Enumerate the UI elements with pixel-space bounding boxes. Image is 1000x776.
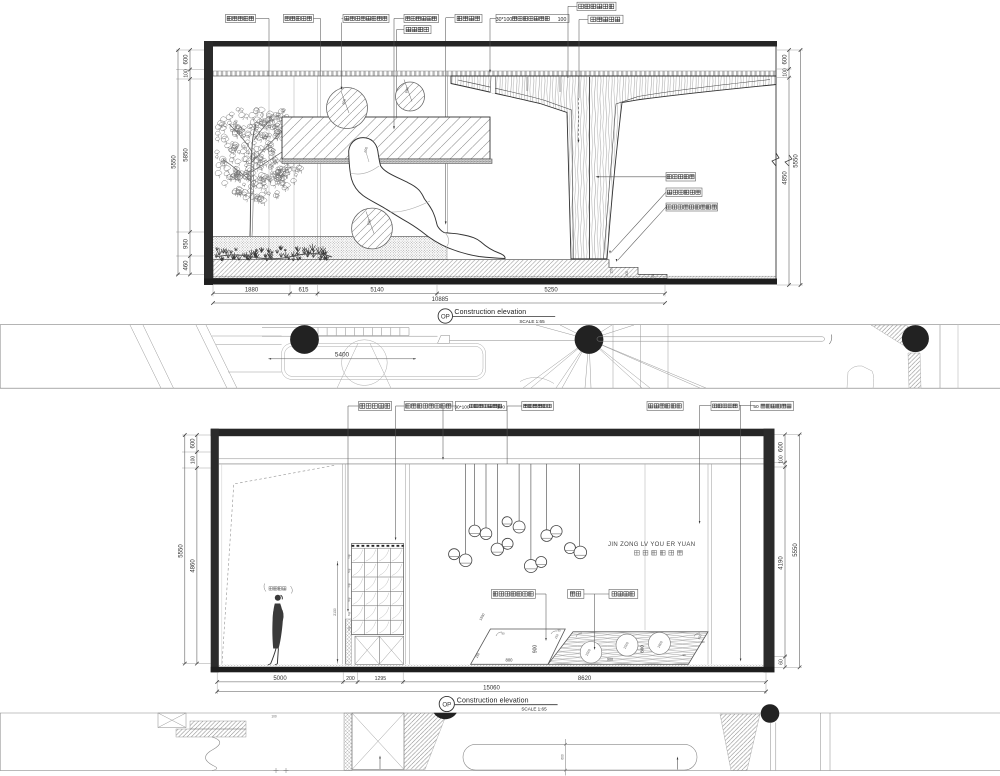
svg-text:60: 60 bbox=[779, 659, 785, 665]
svg-text:200: 200 bbox=[346, 676, 355, 682]
svg-text:SCALE 1:65: SCALE 1:65 bbox=[521, 707, 547, 712]
svg-text:100: 100 bbox=[184, 69, 190, 78]
svg-text:Construction elevation: Construction elevation bbox=[457, 698, 529, 705]
svg-text:500: 500 bbox=[347, 611, 351, 616]
svg-text:5000: 5000 bbox=[273, 676, 287, 682]
svg-text:2130: 2130 bbox=[333, 608, 337, 616]
svg-text:4860: 4860 bbox=[190, 559, 196, 573]
svg-text:OP: OP bbox=[441, 313, 450, 320]
svg-text:500: 500 bbox=[347, 554, 351, 559]
svg-text:150: 150 bbox=[651, 274, 655, 280]
svg-text:600: 600 bbox=[779, 441, 785, 452]
svg-text:800: 800 bbox=[640, 645, 645, 653]
svg-text:90: 90 bbox=[701, 640, 705, 644]
svg-text:30*100: 30*100 bbox=[454, 404, 470, 410]
svg-text:600: 600 bbox=[561, 754, 565, 760]
svg-text:1880: 1880 bbox=[245, 288, 259, 294]
svg-text:100: 100 bbox=[783, 68, 789, 77]
svg-text:5550: 5550 bbox=[172, 155, 178, 169]
svg-text:5140: 5140 bbox=[370, 288, 384, 294]
svg-text:90: 90 bbox=[501, 632, 505, 636]
svg-text:5550: 5550 bbox=[793, 543, 799, 557]
svg-text:OP: OP bbox=[442, 701, 451, 708]
svg-text:90: 90 bbox=[682, 653, 686, 657]
svg-text:5550: 5550 bbox=[794, 154, 800, 168]
svg-text:615: 615 bbox=[298, 288, 309, 294]
svg-text:5400: 5400 bbox=[335, 352, 350, 359]
svg-text:Construction elevation: Construction elevation bbox=[454, 309, 526, 316]
svg-text:900: 900 bbox=[607, 658, 613, 662]
svg-text:300: 300 bbox=[625, 271, 629, 277]
svg-text:JIN ZONG LV YOU ER YUAN: JIN ZONG LV YOU ER YUAN bbox=[608, 542, 695, 548]
svg-text:150: 150 bbox=[610, 268, 614, 274]
svg-text:1295: 1295 bbox=[375, 676, 387, 682]
svg-text:100: 100 bbox=[190, 456, 196, 465]
svg-text:600: 600 bbox=[184, 54, 190, 65]
svg-text:8620: 8620 bbox=[578, 676, 592, 682]
svg-text:SCALE 1:65: SCALE 1:65 bbox=[519, 319, 545, 324]
svg-text:600: 600 bbox=[190, 438, 196, 449]
svg-text:100: 100 bbox=[497, 404, 505, 410]
svg-text:90: 90 bbox=[557, 629, 561, 633]
svg-text:900: 900 bbox=[533, 645, 539, 654]
svg-text:5850: 5850 bbox=[184, 148, 190, 162]
svg-text:800: 800 bbox=[506, 658, 514, 663]
svg-text:50: 50 bbox=[753, 404, 759, 410]
svg-text:4850: 4850 bbox=[783, 171, 789, 185]
svg-text:500: 500 bbox=[347, 597, 351, 602]
svg-text:15060: 15060 bbox=[483, 686, 500, 692]
svg-text:500: 500 bbox=[347, 568, 351, 573]
svg-text:500: 500 bbox=[347, 582, 351, 587]
svg-text:100: 100 bbox=[558, 17, 567, 23]
svg-text:950: 950 bbox=[184, 238, 190, 249]
svg-text:4190: 4190 bbox=[779, 556, 785, 570]
svg-text:460: 460 bbox=[184, 260, 190, 271]
svg-text:5550: 5550 bbox=[178, 544, 184, 558]
svg-text:100: 100 bbox=[271, 715, 277, 719]
svg-text:100: 100 bbox=[779, 455, 785, 464]
svg-text:10885: 10885 bbox=[432, 297, 449, 303]
svg-text:30*100: 30*100 bbox=[496, 17, 513, 23]
svg-text:5250: 5250 bbox=[544, 288, 558, 294]
svg-text:600: 600 bbox=[783, 54, 789, 65]
